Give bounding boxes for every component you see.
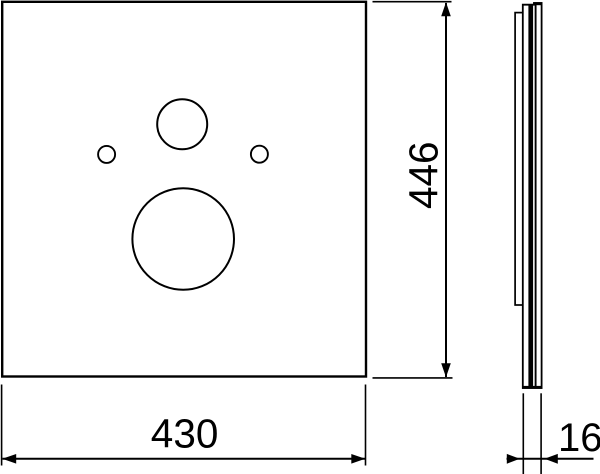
svg-text:446: 446 [401, 141, 447, 209]
svg-text:16: 16 [558, 416, 600, 460]
svg-text:430: 430 [151, 411, 219, 457]
